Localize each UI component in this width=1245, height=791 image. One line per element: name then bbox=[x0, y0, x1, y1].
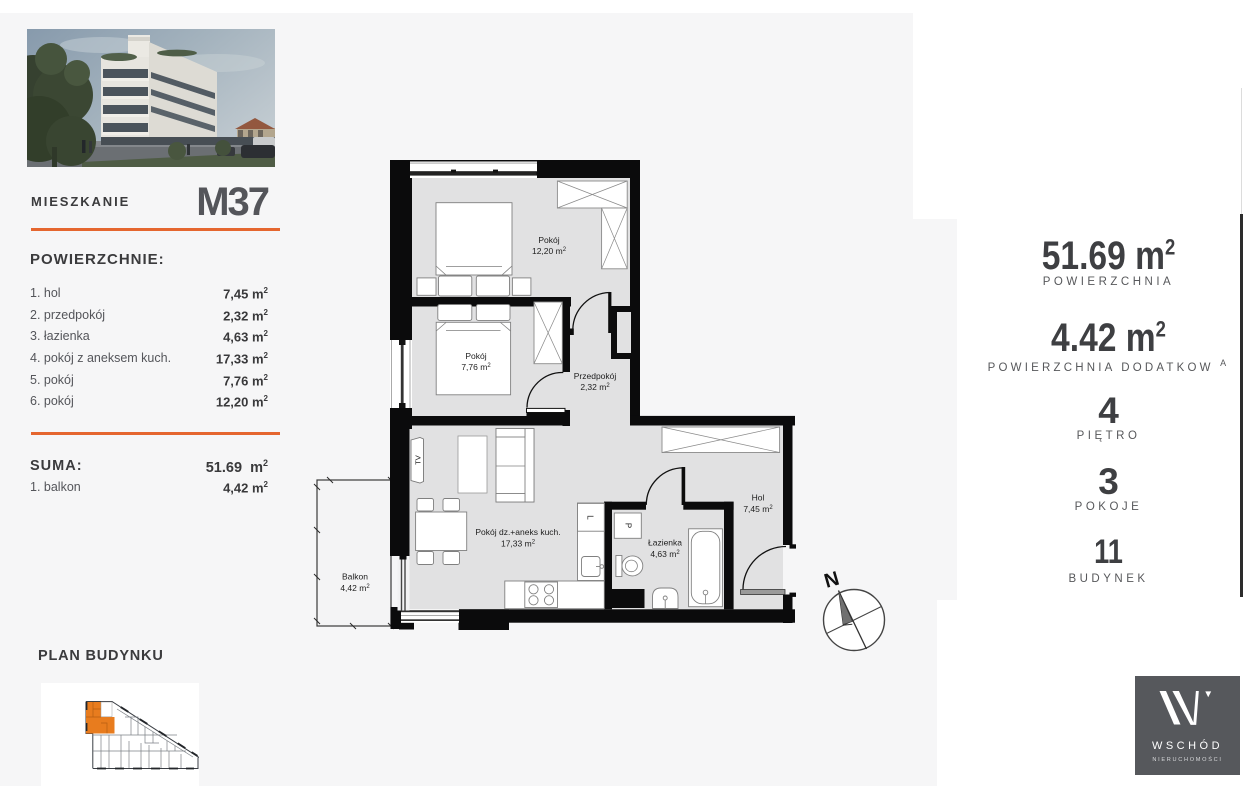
svg-text:12,20 m2: 12,20 m2 bbox=[532, 246, 567, 256]
svg-text:N: N bbox=[822, 568, 842, 593]
svg-text:7,45 m2: 7,45 m2 bbox=[743, 504, 773, 514]
svg-text:Łazienka: Łazienka bbox=[648, 538, 682, 548]
svg-text:TV: TV bbox=[414, 455, 423, 465]
svg-text:4,63 m2: 4,63 m2 bbox=[650, 549, 680, 559]
svg-text:17,33 m2: 17,33 m2 bbox=[501, 539, 536, 549]
svg-text:P: P bbox=[624, 523, 633, 528]
svg-text:Pokój dz.+aneks kuch.: Pokój dz.+aneks kuch. bbox=[475, 527, 560, 537]
svg-text:2,32 m2: 2,32 m2 bbox=[580, 382, 610, 392]
svg-text:Hol: Hol bbox=[752, 493, 765, 503]
svg-text:NIERUCHOMOŚCI: NIERUCHOMOŚCI bbox=[1152, 755, 1222, 763]
svg-text:Pokój: Pokój bbox=[465, 351, 486, 361]
svg-text:4,42 m2: 4,42 m2 bbox=[340, 583, 370, 593]
svg-text:L: L bbox=[586, 515, 595, 520]
svg-text:Przedpokój: Przedpokój bbox=[574, 371, 617, 381]
svg-text:7,76 m2: 7,76 m2 bbox=[461, 362, 491, 372]
svg-text:Balkon: Balkon bbox=[342, 572, 368, 582]
svg-text:WSCHÓD: WSCHÓD bbox=[1152, 739, 1223, 752]
svg-text:Pokój: Pokój bbox=[538, 235, 559, 245]
